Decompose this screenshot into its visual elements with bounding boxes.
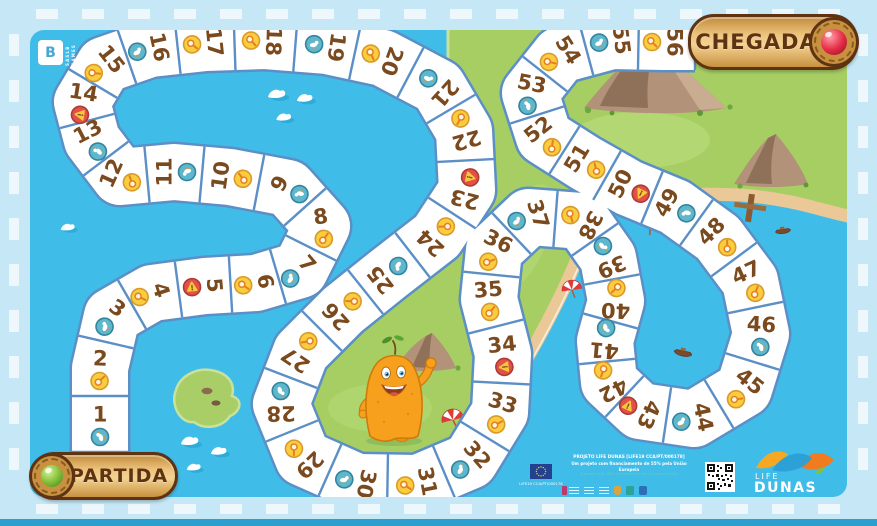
bird-icon <box>751 338 769 356</box>
cell-number: 34 <box>486 331 518 358</box>
cell-number: 55 <box>608 24 635 56</box>
cell-number: 17 <box>201 26 228 58</box>
cell-number: 5 <box>202 277 227 294</box>
start-medal <box>29 453 75 499</box>
cell-number: 19 <box>322 31 350 63</box>
qr-code <box>705 462 735 492</box>
logo-dunas-text: DUNAS <box>754 480 817 496</box>
eu-project-reference: LIFE19 CCA/PT/000178 <box>514 481 568 486</box>
frame-dash-bottom <box>36 504 842 514</box>
red-gem-icon <box>821 29 847 55</box>
bird-icon <box>92 429 109 446</box>
finish-banner[interactable]: CHEGADA <box>688 14 858 70</box>
cell-number: 1 <box>93 403 108 427</box>
cell-number: 11 <box>153 157 177 186</box>
partner-logo <box>614 486 621 495</box>
partner-logos <box>562 484 702 497</box>
cell-number: 10 <box>207 160 235 192</box>
warning-icon <box>183 278 201 296</box>
finish-medal <box>809 17 859 67</box>
board-cell-2[interactable]: 2 <box>91 346 109 390</box>
project-funding-pt: Um projeto com financiamento de 55% pela… <box>566 461 692 472</box>
partner-logo <box>584 487 594 495</box>
bird-icon <box>179 164 196 181</box>
green-gem-icon <box>41 465 63 487</box>
magnifier-icon <box>608 279 626 297</box>
project-credits: PROJETO LIFE DUNAS [LIFE19 CCA/PT/000178… <box>566 455 692 477</box>
cell-number: 2 <box>93 346 108 370</box>
cell-number: 14 <box>67 79 100 107</box>
board-scene: 1234567891011121314151617181920212223242… <box>0 0 877 526</box>
cell-number: 35 <box>473 276 504 302</box>
frame-dash-left <box>9 34 19 492</box>
cell-number: 41 <box>589 337 620 363</box>
cell-number: 56 <box>662 27 686 56</box>
publisher-logo-text: SASLB <box>66 40 70 66</box>
publisher-logo: B SASLB GAMES <box>38 40 76 66</box>
partner-logo <box>639 486 647 495</box>
start-banner[interactable]: PARTIDA <box>30 452 178 500</box>
life-dunas-logo: LIFE DUNAS <box>752 444 844 496</box>
bird-icon <box>272 382 289 399</box>
warning-icon <box>495 358 514 377</box>
magnifier-icon <box>242 32 260 50</box>
board-cell-1[interactable]: 1 <box>92 403 109 446</box>
publisher-logo-mark: B <box>38 40 63 65</box>
magnifier-icon <box>91 372 109 390</box>
cell-number: 28 <box>266 401 296 426</box>
project-funding-en: A project with 55% funding from the Euro… <box>566 472 692 477</box>
partner-logo <box>626 486 634 495</box>
cell-number: 18 <box>261 26 286 56</box>
partner-logo <box>599 487 609 495</box>
islet <box>174 370 239 427</box>
cell-number: 46 <box>746 312 776 337</box>
magnifier-icon <box>481 303 499 321</box>
magnifier-icon <box>644 34 661 51</box>
bird-icon <box>597 319 615 337</box>
frame-dash-right <box>858 34 868 492</box>
magnifier-icon <box>183 35 202 54</box>
partner-logo <box>562 486 579 495</box>
publisher-logo-text: GAMES <box>72 40 76 66</box>
bottom-strip <box>0 519 877 526</box>
game-board: 1234567891011121314151617181920212223242… <box>0 0 877 526</box>
eu-flag-icon <box>530 464 552 479</box>
